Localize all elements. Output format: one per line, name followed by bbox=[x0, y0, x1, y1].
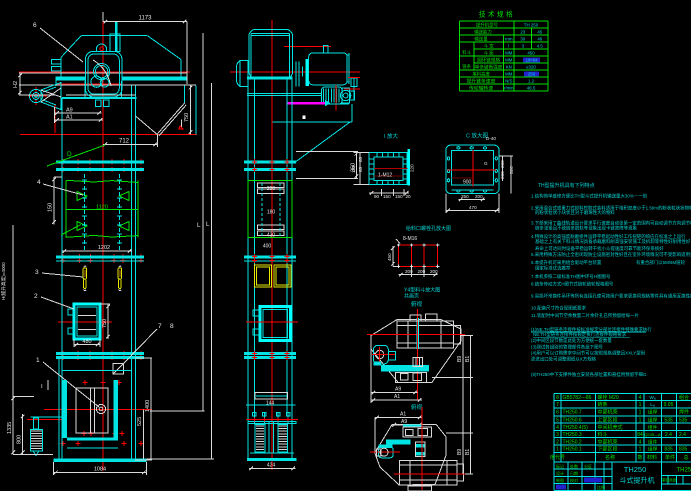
svg-text:mm: mm bbox=[505, 36, 513, 41]
svg-text:900: 900 bbox=[463, 180, 472, 186]
svg-text:4: 4 bbox=[639, 395, 642, 401]
svg-text:TH250.3: TH250.3 bbox=[563, 432, 582, 438]
svg-text:424: 424 bbox=[267, 463, 276, 469]
svg-text:数: 数 bbox=[637, 454, 642, 461]
svg-text:的粉状粒状小块状且对于磨琢性大的物料: 的粉状粒状小块状且对于磨琢性大的物料 bbox=[535, 209, 615, 216]
svg-text:6: 6 bbox=[33, 22, 37, 29]
svg-text:450: 450 bbox=[527, 50, 535, 55]
svg-text:俯视: 俯视 bbox=[411, 300, 423, 308]
svg-text:斗式提升机: 斗式提升机 bbox=[620, 476, 655, 485]
svg-text:3: 3 bbox=[35, 269, 39, 276]
svg-text:B9: B9 bbox=[457, 356, 463, 362]
svg-text:H(提升高度)=4000: H(提升高度)=4000 bbox=[0, 262, 7, 300]
svg-text:A1: A1 bbox=[400, 412, 406, 418]
svg-text:输送量: 输送量 bbox=[474, 35, 488, 42]
svg-text:6: 6 bbox=[556, 410, 559, 416]
svg-text:4.5: 4.5 bbox=[537, 43, 544, 48]
svg-text:G: G bbox=[484, 161, 488, 166]
svg-text:KN: KN bbox=[506, 64, 512, 69]
svg-text:下部区段: 下部区段 bbox=[598, 446, 618, 453]
svg-text:MM: MM bbox=[505, 50, 513, 55]
svg-text:1335: 1335 bbox=[7, 422, 13, 434]
svg-text:1: 1 bbox=[36, 357, 40, 364]
svg-text:斗 宽: 斗 宽 bbox=[484, 42, 495, 49]
svg-text:23: 23 bbox=[520, 29, 525, 34]
svg-text:链条张紧且不致链条脱轨等现象出现卡链故障等现象: 链条张紧且不致链条脱轨等现象出现卡链故障等现象 bbox=[535, 224, 638, 231]
svg-text:单件: 单件 bbox=[665, 454, 675, 461]
svg-text:4: 4 bbox=[556, 425, 559, 431]
svg-text:150: 150 bbox=[48, 203, 54, 212]
svg-text:4: 4 bbox=[639, 439, 642, 445]
svg-text:200: 200 bbox=[475, 194, 483, 199]
svg-text:TH250: TH250 bbox=[624, 465, 647, 474]
svg-text:A1: A1 bbox=[394, 394, 400, 400]
svg-text:(4)用户可以订购需求中间节可以按照规格调整且XXLY型用: (4)用户可以订购需求中间节可以按照规格调整且XXLY型用 bbox=[531, 350, 645, 357]
svg-text:220: 220 bbox=[410, 164, 415, 172]
svg-text:TH 250: TH 250 bbox=[524, 22, 539, 27]
svg-text:1202: 1202 bbox=[98, 245, 110, 251]
svg-text:组焊: 组焊 bbox=[648, 446, 658, 453]
svg-text:比例: 比例 bbox=[597, 484, 605, 490]
svg-text:250: 250 bbox=[461, 194, 469, 199]
svg-text:名称: 名称 bbox=[605, 454, 615, 461]
svg-text:中部机壳: 中部机壳 bbox=[598, 438, 618, 445]
svg-text:1: 1 bbox=[639, 410, 642, 416]
svg-text:3: 3 bbox=[556, 432, 559, 438]
svg-text:5.采用特殊方法防止全密闭现防尘设施密封性好且在室外环境情况: 5.采用特殊方法防止全密闭现防尘设施密封性好且在室外环境情况可不受影响适用外场合 bbox=[531, 251, 691, 258]
svg-text:设计: 设计 bbox=[556, 470, 564, 476]
svg-text:470: 470 bbox=[469, 205, 477, 210]
svg-text:共画页: 共画页 bbox=[404, 293, 419, 300]
svg-text:B1: B1 bbox=[465, 449, 471, 455]
svg-text:MM: MM bbox=[505, 71, 513, 76]
svg-text:7.本机参照二级标准TH图中环号H图图号: 7.本机参照二级标准TH图中环号H图图号 bbox=[531, 273, 611, 280]
svg-text:l: l bbox=[508, 43, 509, 48]
svg-text:传动轴转速: 传动轴转速 bbox=[469, 84, 493, 91]
svg-text:535: 535 bbox=[679, 417, 688, 423]
svg-text:30: 30 bbox=[520, 36, 525, 41]
svg-text:150: 150 bbox=[383, 194, 391, 199]
svg-text:200: 200 bbox=[430, 269, 438, 274]
svg-text:技术规格: 技术规格 bbox=[479, 10, 515, 19]
svg-text:2: 2 bbox=[34, 293, 38, 300]
svg-text:180: 180 bbox=[267, 210, 276, 216]
svg-text:共张: 共张 bbox=[669, 478, 677, 483]
svg-text:1: 1 bbox=[639, 447, 642, 453]
svg-text:校对: 校对 bbox=[570, 477, 578, 483]
svg-text:俯视: 俯视 bbox=[411, 403, 423, 411]
svg-text:r/min: r/min bbox=[504, 85, 514, 90]
svg-text:D: D bbox=[67, 151, 72, 158]
svg-text:1-M12: 1-M12 bbox=[378, 173, 392, 179]
svg-text:84: 84 bbox=[637, 432, 643, 438]
svg-text:200: 200 bbox=[500, 171, 505, 179]
svg-text:65: 65 bbox=[358, 166, 363, 172]
svg-text:750: 750 bbox=[102, 319, 108, 328]
svg-text:7: 7 bbox=[556, 402, 559, 408]
svg-text:2.4: 2.4 bbox=[665, 432, 672, 438]
svg-text:8.链条传动方式H图节式链轮链轮规格图号: 8.链条传动方式H图节式链轮链轮规格图号 bbox=[531, 281, 614, 288]
svg-text:2: 2 bbox=[556, 439, 559, 445]
svg-text:250: 250 bbox=[528, 71, 536, 76]
svg-text:中间机壳式: 中间机壳式 bbox=[598, 424, 623, 431]
svg-text:TH型提升机具有下列特点: TH型提升机具有下列特点 bbox=[538, 182, 595, 189]
svg-text:1084: 1084 bbox=[94, 467, 106, 473]
svg-text:组焊: 组焊 bbox=[648, 416, 658, 423]
svg-text:N/S: N/S bbox=[505, 78, 512, 83]
svg-text:链条: 链条 bbox=[598, 401, 608, 408]
svg-text:1120: 1120 bbox=[96, 205, 108, 211]
svg-text:上部区段: 上部区段 bbox=[598, 416, 618, 423]
svg-text:给料口螺栓孔放大图: 给料口螺栓孔放大图 bbox=[406, 225, 451, 232]
svg-text:分区: 分区 bbox=[584, 463, 592, 469]
svg-text:535: 535 bbox=[664, 417, 673, 423]
svg-text:A9: A9 bbox=[395, 387, 401, 393]
svg-text:2.4: 2.4 bbox=[679, 432, 686, 438]
svg-text:组件: 组件 bbox=[648, 424, 658, 431]
svg-text:200: 200 bbox=[500, 160, 505, 168]
svg-text:GB5782—86: GB5782—86 bbox=[563, 395, 592, 401]
svg-text:组合: 组合 bbox=[679, 394, 689, 401]
svg-text:9.易损坏常换件吊环等所有连接孔使可按用户要求更换同规格零件: 9.易损坏常换件吊环等所有连接孔使可按用户要求更换同规格零件具有通用互换性能好 bbox=[531, 292, 691, 299]
svg-text:国家标准优选推荐: 国家标准优选推荐 bbox=[535, 265, 571, 272]
svg-text:(2)中间区段节数是此处为方便统一套数量: (2)中间区段节数是此处为方便统一套数量 bbox=[531, 337, 612, 344]
svg-text:日期: 日期 bbox=[570, 470, 578, 476]
svg-text:MM: MM bbox=[505, 57, 513, 62]
svg-text:有重合部门以5M/6M链轮: 有重合部门以5M/6M链轮 bbox=[636, 259, 686, 266]
svg-text:Q235—A: Q235—A bbox=[644, 432, 661, 437]
svg-text:TH250.4(5): TH250.4(5) bbox=[563, 425, 589, 431]
svg-text:标记: 标记 bbox=[556, 463, 564, 469]
svg-text:4: 4 bbox=[37, 179, 41, 186]
svg-text:835: 835 bbox=[679, 447, 688, 453]
svg-text:Y4型料斗放大图: Y4型料斗放大图 bbox=[404, 287, 440, 294]
svg-text:≥320: ≥320 bbox=[526, 64, 536, 69]
svg-text:48.5: 48.5 bbox=[527, 85, 536, 90]
svg-text:1.结构简单维修方便比TH型斗式提升机输送量大30%－一倍: 1.结构简单维修方便比TH型斗式提升机输送量大30%－一倍 bbox=[531, 193, 648, 200]
svg-text:单条破断强度: 单条破断强度 bbox=[475, 63, 503, 70]
svg-text:中部机壳: 中部机壳 bbox=[598, 409, 618, 416]
svg-text:提升链条速度: 提升链条速度 bbox=[467, 77, 496, 84]
svg-text:195: 195 bbox=[351, 165, 356, 173]
svg-text:I 放大: I 放大 bbox=[384, 132, 399, 140]
svg-text:TH250.2: TH250.2 bbox=[563, 439, 582, 445]
svg-text:450: 450 bbox=[387, 253, 392, 261]
svg-text:D-40: D-40 bbox=[486, 136, 496, 141]
svg-text:Wₐ: Wₐ bbox=[649, 395, 656, 401]
svg-text:TH250.1: TH250.1 bbox=[563, 447, 582, 453]
svg-text:(3)测试各组别的管理部件各组下图号: (3)测试各组别的管理部件各组下图号 bbox=[531, 344, 604, 351]
svg-text:10.配备尺寸符合现图纸要求: 10.配备尺寸符合现图纸要求 bbox=[531, 304, 587, 311]
svg-text:制图: 制图 bbox=[556, 477, 564, 483]
svg-text:45: 45 bbox=[537, 29, 542, 34]
svg-text:(8)TH250中下支撑件独立安装各部位置和悬挂用预留字细G: (8)TH250中下支撑件独立安装各部位置和悬挂用预留字细G. bbox=[531, 371, 648, 378]
svg-text:712: 712 bbox=[119, 139, 130, 145]
svg-text:材料: 材料 bbox=[647, 454, 657, 461]
svg-text:焊件: 焊件 bbox=[679, 409, 689, 416]
svg-text:B1: B1 bbox=[465, 356, 471, 362]
svg-text:H2: H2 bbox=[13, 81, 19, 88]
svg-text:20: 20 bbox=[406, 194, 412, 199]
svg-text:组焊: 组焊 bbox=[648, 409, 658, 416]
svg-text:1: 1 bbox=[556, 447, 559, 453]
svg-text:1173: 1173 bbox=[139, 16, 153, 22]
svg-text:835: 835 bbox=[664, 447, 673, 453]
svg-text:65: 65 bbox=[358, 156, 363, 162]
svg-text:基础之上有关下料斗情况具备承载磨料耐高强安装施工及拆卸等特性: 基础之上有关下料斗情况具备承载磨料耐高强安装施工及拆卸等特性好耐用性好 bbox=[535, 238, 691, 245]
svg-text:Lₐ: Lₐ bbox=[650, 402, 655, 408]
svg-text:400: 400 bbox=[263, 244, 272, 250]
svg-text:8: 8 bbox=[556, 395, 559, 401]
svg-text:18×64: 18×64 bbox=[526, 57, 538, 62]
svg-text:250: 250 bbox=[267, 186, 276, 192]
svg-text:90: 90 bbox=[374, 194, 380, 199]
svg-text:1400: 1400 bbox=[145, 400, 151, 412]
svg-text:料斗: 料斗 bbox=[598, 431, 608, 438]
svg-text:520: 520 bbox=[509, 166, 514, 174]
svg-text:螺栓 M20: 螺栓 M20 bbox=[598, 394, 619, 401]
svg-text:输送能力: 输送能力 bbox=[474, 28, 492, 35]
svg-text:提升机型号: 提升机型号 bbox=[476, 21, 499, 28]
svg-text:寿命上可达同时设备平稳运转干扰小斗提速度可靠节能环保系统好: 寿命上可达同时设备平稳运转干扰小斗提速度可靠节能环保系统好 bbox=[535, 245, 664, 252]
svg-text:1: 1 bbox=[639, 402, 642, 408]
svg-text:480: 480 bbox=[82, 339, 91, 345]
svg-text:430: 430 bbox=[267, 233, 276, 239]
svg-text:料斗: 料斗 bbox=[462, 49, 471, 56]
svg-text:8: 8 bbox=[170, 323, 174, 330]
svg-text:TH250.6: TH250.6 bbox=[563, 417, 582, 423]
svg-text:1.2: 1.2 bbox=[528, 78, 535, 83]
svg-text:525: 525 bbox=[137, 417, 143, 426]
svg-text:TH250.7: TH250.7 bbox=[563, 410, 582, 416]
svg-text:5: 5 bbox=[556, 417, 559, 423]
svg-text:圆环链规格: 圆环链规格 bbox=[477, 56, 500, 63]
svg-text:途进出口处可调整图纸以X方规格: 途进出口处可调整图纸以X方规格 bbox=[531, 356, 597, 363]
svg-text:9.05: 9.05 bbox=[664, 402, 674, 408]
svg-text:48: 48 bbox=[537, 36, 542, 41]
svg-text:150: 150 bbox=[395, 194, 403, 199]
svg-text:堵料高度: 堵料高度 bbox=[472, 70, 490, 77]
svg-text:7: 7 bbox=[158, 323, 162, 330]
svg-text:斗 距: 斗 距 bbox=[484, 50, 495, 55]
svg-text:序代号: 序代号 bbox=[550, 454, 565, 461]
svg-text:800: 800 bbox=[16, 435, 22, 444]
svg-text:144: 144 bbox=[266, 401, 275, 407]
svg-text:8-M16: 8-M16 bbox=[403, 236, 417, 242]
svg-text:处数: 处数 bbox=[570, 463, 578, 469]
svg-text:11.装配时中间节空余数量二片余针孔已所预留给每一片: 11.装配时中间节空余数量二片余针孔已所预留给每一片 bbox=[531, 312, 639, 319]
svg-text:链条: 链条 bbox=[462, 63, 471, 70]
svg-text:总: 总 bbox=[683, 454, 688, 461]
svg-text:750: 750 bbox=[184, 113, 190, 122]
svg-text:TH25: TH25 bbox=[677, 468, 691, 474]
svg-text:1: 1 bbox=[639, 417, 642, 423]
svg-text:组件: 组件 bbox=[648, 438, 658, 445]
svg-text:B9: B9 bbox=[457, 449, 463, 455]
